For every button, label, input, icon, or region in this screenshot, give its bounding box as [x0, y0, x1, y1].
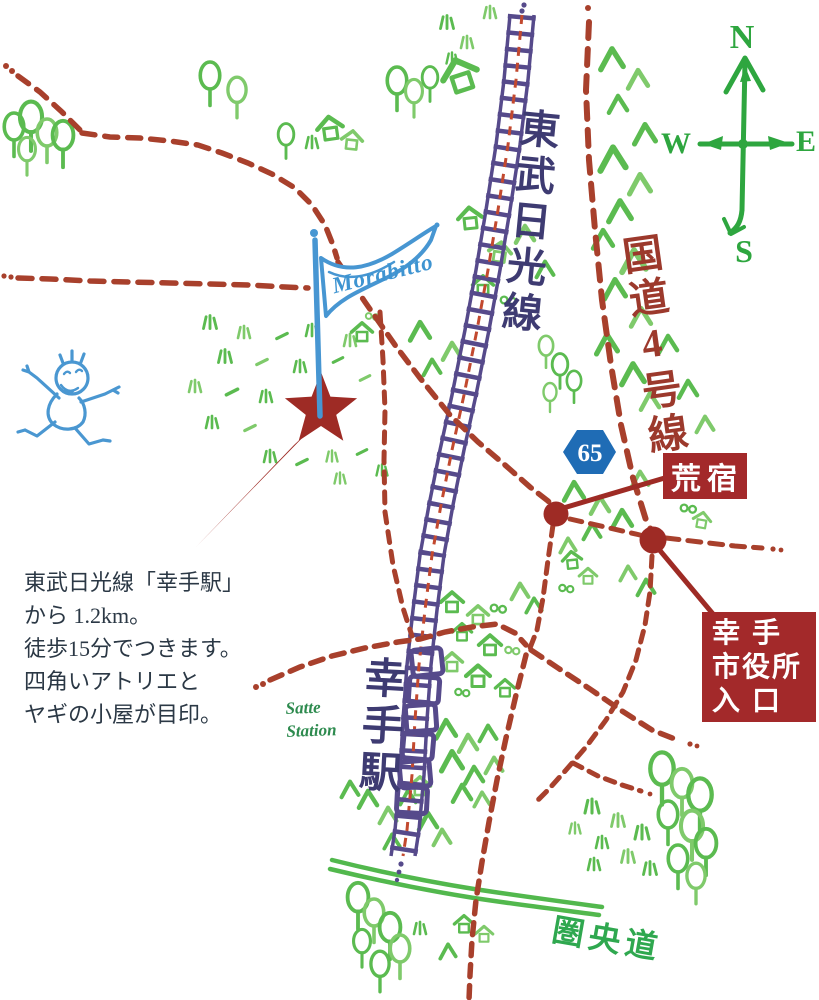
conifer-icon [424, 360, 441, 376]
grass-icon [635, 825, 649, 839]
station-en-line2: Station [286, 718, 337, 743]
shrub-icon [681, 505, 696, 513]
road-east-from-dot2 [666, 538, 783, 552]
grass-icon [622, 850, 635, 863]
tree-icon [387, 67, 407, 111]
conifer-icon [612, 510, 632, 528]
conifer-icon [609, 201, 631, 222]
station-name-label-jp: 幸手駅 [345, 654, 413, 798]
grass-icon [204, 316, 217, 329]
tree-icon [19, 137, 36, 175]
station-name-label-en: Satte Station [285, 695, 337, 743]
road-short-southeast [573, 763, 652, 796]
route-65-shield: 65 [563, 430, 616, 474]
pointer-to-cityhall [657, 547, 713, 614]
conifer-icon [436, 720, 456, 738]
flag-finial [310, 229, 318, 237]
grass-icon [570, 823, 581, 834]
landmark-arajuku-label: 荒宿 [663, 453, 747, 499]
hand-drawn-access-map: N W E S 65 東武日光線 国道4号線 幸手駅 Satte Station… [0, 0, 819, 1000]
note-line: 東武日光線「幸手駅」 [24, 566, 244, 599]
tree-icon [688, 778, 711, 830]
junction-dot [544, 502, 569, 527]
tree-icon [552, 354, 568, 389]
tree-icon [354, 929, 371, 967]
tree-icon [53, 121, 74, 167]
conifer-icon [600, 147, 625, 170]
shrub-icon [505, 647, 519, 654]
conifer-icon [560, 538, 575, 552]
grass-icon [189, 380, 201, 392]
road-upper-to-flag [82, 133, 337, 258]
conifer-icon [434, 830, 451, 846]
conifer-icon [442, 752, 463, 772]
house-icon [457, 206, 483, 229]
grass-icon [441, 16, 454, 29]
compass-n-label: N [730, 19, 755, 56]
conifer-icon [628, 70, 648, 88]
grass-icon [335, 473, 346, 484]
compass-center-dot [738, 139, 748, 149]
sprig-icon [277, 333, 287, 338]
tree-icon [696, 829, 717, 875]
note-line: 四角いアトリエと [24, 665, 244, 698]
conifer-icon [453, 785, 471, 802]
grass-icon [219, 350, 232, 363]
compass-e-label: E [796, 125, 816, 158]
conifer-icon [635, 125, 656, 145]
grass-icon [612, 814, 625, 827]
compass-vertical [742, 62, 745, 210]
grass-icon [461, 36, 473, 48]
shrub-icon [491, 605, 506, 613]
grass-icon [588, 858, 600, 870]
child-head [56, 362, 88, 394]
conifer-icon [459, 735, 477, 752]
compass-east-arrow [768, 136, 789, 150]
tree-icon [544, 383, 557, 412]
grass-icon [264, 450, 276, 462]
tree-icon [658, 801, 678, 845]
child-eyes [64, 370, 82, 374]
cityhall-line1: 幸手 [712, 617, 816, 651]
road-junction-south [469, 655, 526, 1000]
conifer-icon [480, 726, 497, 742]
tree-icon [687, 863, 705, 904]
route-65-number: 65 [578, 440, 603, 467]
vegetation [4, 6, 716, 992]
note-line: から 1.2km。 [24, 599, 244, 632]
shrub-icon [455, 689, 469, 696]
grass-icon [327, 451, 338, 462]
child-front-leg [75, 428, 110, 444]
conifer-icon [620, 566, 635, 580]
sprig-icon [297, 459, 307, 464]
house-icon [316, 115, 344, 141]
grass-icon [260, 390, 272, 402]
cityhall-line2: 市役所 [712, 651, 816, 685]
grass-icon [484, 6, 496, 18]
note-line: ヤギの小屋が目印。 [24, 698, 244, 731]
grass-icon [206, 416, 218, 428]
sprig-icon [257, 359, 267, 364]
road-junction-southeast [531, 650, 699, 748]
house-icon [579, 568, 597, 583]
map-drawing: N W E S 65 [0, 0, 819, 1000]
conifer-icon [630, 175, 651, 195]
house-icon [439, 55, 482, 95]
house-icon [468, 606, 489, 624]
sprig-icon [360, 376, 370, 381]
conifer-icon [601, 49, 623, 70]
tree-icon [228, 77, 246, 118]
compass-rose: N W E S [661, 19, 816, 269]
road-dot1-down [530, 525, 553, 648]
station-marker [408, 676, 440, 704]
conifer-icon [440, 944, 455, 958]
leader-line [196, 431, 309, 547]
house-icon [475, 926, 493, 941]
compass-w-label: W [661, 127, 691, 160]
tree-icon [200, 62, 220, 106]
conifer-icon [410, 322, 430, 340]
tree-icon [567, 371, 581, 403]
landmark-cityhall-label: 幸手 市役所 入口 [702, 612, 816, 722]
conifer-icon [512, 584, 529, 600]
house-icon [562, 551, 583, 570]
tree-icon [406, 79, 423, 117]
house-icon [495, 680, 514, 697]
child-right-arm [81, 387, 119, 402]
grass-icon [414, 922, 426, 934]
house-icon [479, 635, 501, 655]
access-note: 東武日光線「幸手駅」 から 1.2km。 徒歩15分でつきます。 四角いアトリエ… [24, 566, 244, 731]
grass-icon [644, 862, 657, 875]
road-left-horizontal [1, 273, 308, 288]
sprig-icon [226, 389, 237, 395]
grass-icon [585, 799, 599, 813]
tree-icon [278, 124, 294, 159]
tree-icon [668, 845, 688, 889]
tree-icon [371, 951, 389, 992]
compass-s-label: S [735, 233, 753, 269]
conifer-icon [564, 482, 584, 500]
child-left-arm [23, 366, 59, 398]
compass-west-arrow [703, 136, 723, 150]
grass-icon [596, 836, 608, 848]
sprig-icon [357, 450, 367, 455]
tree-icon [390, 935, 410, 979]
grass-icon [344, 334, 356, 346]
sprig-icon [333, 358, 343, 363]
note-line: 徒歩15分でつきます。 [24, 632, 244, 665]
junction-dot [640, 527, 667, 554]
grass-icon [306, 136, 318, 148]
conifer-icon [380, 808, 397, 824]
house-icon [341, 130, 364, 150]
child-back-leg [18, 422, 55, 436]
running-child-doodle [18, 351, 119, 444]
conifer-icon [609, 96, 627, 113]
conifer-icon [697, 417, 714, 433]
station-en-line1: Satte [285, 695, 336, 720]
shrub-icon [559, 585, 573, 592]
house-icon [466, 666, 490, 687]
road-dot2-curve-south [536, 556, 652, 802]
cityhall-line3: 入口 [712, 685, 816, 719]
house-icon [441, 592, 463, 612]
sprig-icon [245, 425, 255, 430]
house-icon [692, 511, 712, 529]
grass-icon [294, 360, 306, 372]
child-hair [60, 351, 84, 363]
grass-icon [238, 326, 250, 338]
tree-icon [422, 67, 438, 102]
conifer-icon [465, 767, 483, 784]
conifer-icon [474, 792, 489, 806]
